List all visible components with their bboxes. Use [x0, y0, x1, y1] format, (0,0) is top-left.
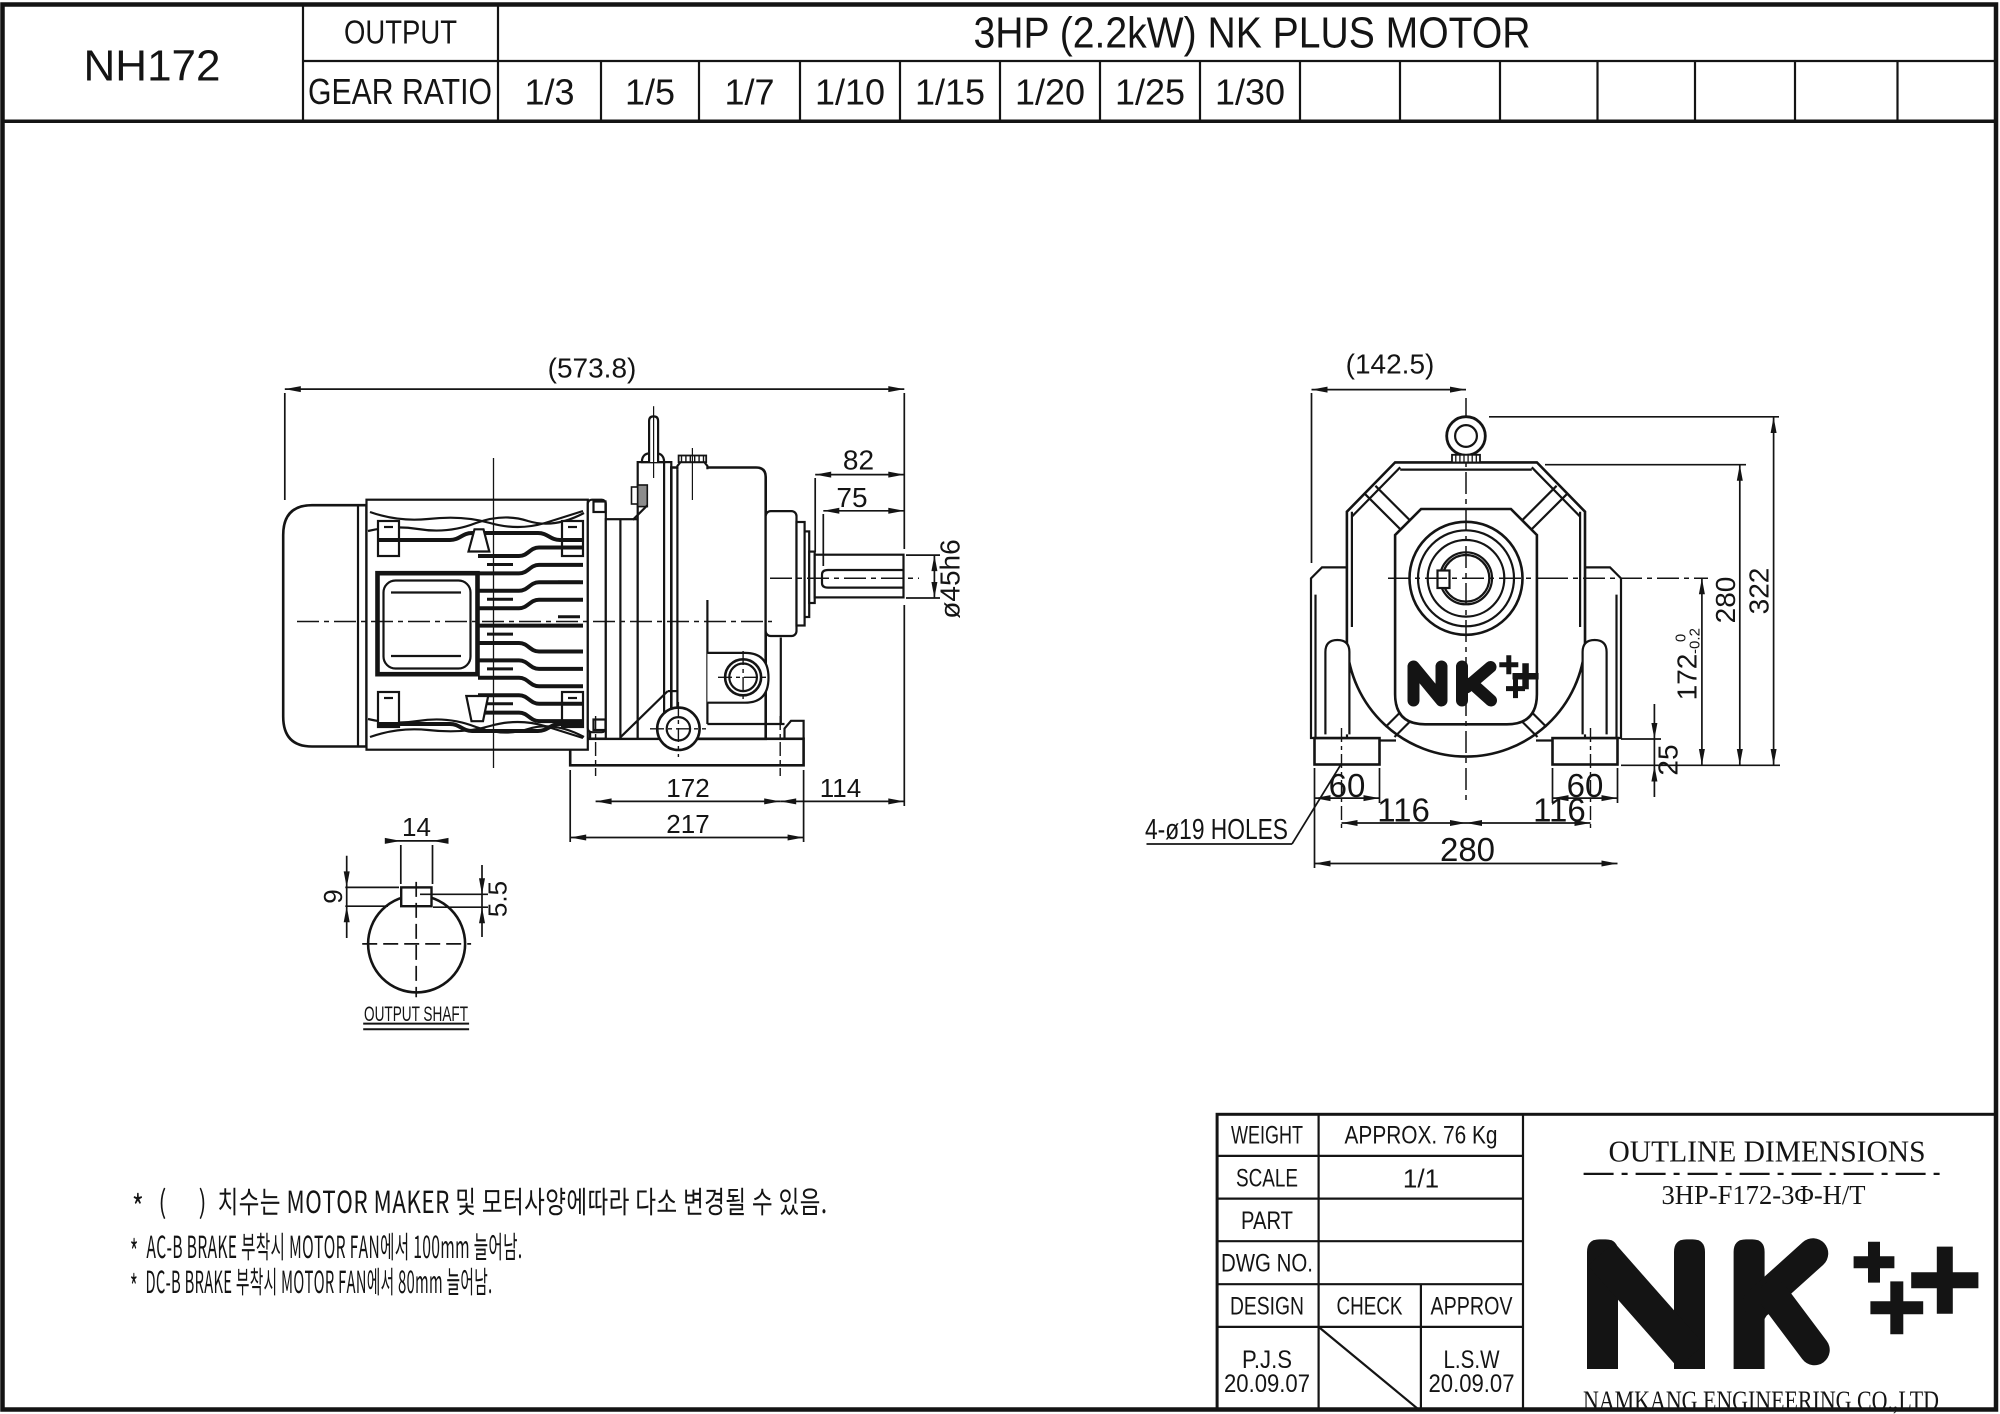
- svg-text:3HP (2.2kW) NK PLUS MOTOR: 3HP (2.2kW) NK PLUS MOTOR: [974, 9, 1531, 58]
- svg-text:9: 9: [318, 889, 348, 903]
- svg-text:1/10: 1/10: [815, 72, 885, 113]
- svg-text:1/3: 1/3: [524, 72, 574, 113]
- svg-text:APPROV: APPROV: [1431, 1293, 1513, 1321]
- svg-text:20.09.07: 20.09.07: [1224, 1370, 1310, 1398]
- svg-text:114: 114: [820, 773, 861, 803]
- svg-text:OUTPUT SHAFT: OUTPUT SHAFT: [364, 1003, 468, 1026]
- svg-text:SCALE: SCALE: [1236, 1165, 1298, 1193]
- svg-text:NH172: NH172: [84, 42, 221, 91]
- svg-text:3HP-F172-3Φ-H/T: 3HP-F172-3Φ-H/T: [1662, 1180, 1866, 1210]
- svg-text:NAMKANG ENGINEERING CO.,LTD: NAMKANG ENGINEERING CO.,LTD: [1583, 1385, 1939, 1414]
- svg-text:1/7: 1/7: [724, 72, 774, 113]
- svg-text:280: 280: [1710, 577, 1741, 624]
- svg-text:172: 172: [666, 773, 709, 803]
- svg-text:4-ø19 HOLES: 4-ø19 HOLES: [1145, 814, 1288, 846]
- svg-text:1/15: 1/15: [915, 72, 985, 113]
- svg-text:1/20: 1/20: [1015, 72, 1085, 113]
- svg-text:25: 25: [1653, 744, 1684, 775]
- svg-text:217: 217: [666, 809, 709, 839]
- svg-text:OUTPUT: OUTPUT: [344, 14, 457, 51]
- svg-text:172: 172: [1672, 654, 1703, 701]
- svg-text:DWG NO.: DWG NO.: [1221, 1250, 1313, 1278]
- svg-text:82: 82: [843, 445, 874, 476]
- svg-text:(142.5): (142.5): [1346, 349, 1435, 380]
- svg-text:WEIGHT: WEIGHT: [1231, 1122, 1303, 1150]
- svg-text:1/25: 1/25: [1115, 72, 1185, 113]
- svg-text:DESIGN: DESIGN: [1230, 1293, 1304, 1321]
- svg-text:5.5: 5.5: [483, 881, 513, 917]
- svg-text:20.09.07: 20.09.07: [1429, 1370, 1515, 1398]
- svg-text:CHECK: CHECK: [1337, 1293, 1403, 1321]
- svg-text:1/5: 1/5: [625, 72, 675, 113]
- svg-text:ø45h6: ø45h6: [935, 539, 966, 618]
- svg-text:GEAR RATIO: GEAR RATIO: [308, 71, 492, 112]
- svg-text:75: 75: [836, 482, 867, 513]
- svg-text:1/30: 1/30: [1215, 72, 1285, 113]
- svg-text:322: 322: [1744, 568, 1775, 615]
- svg-text:(573.8): (573.8): [548, 353, 637, 384]
- svg-text:14: 14: [402, 812, 431, 842]
- svg-text:PART: PART: [1241, 1207, 1293, 1235]
- svg-text:APPROX. 76 Kg: APPROX. 76 Kg: [1345, 1122, 1498, 1150]
- svg-text:1/1: 1/1: [1403, 1164, 1439, 1194]
- svg-text:-0.2: -0.2: [1687, 628, 1704, 654]
- svg-text:OUTLINE DIMENSIONS: OUTLINE DIMENSIONS: [1609, 1134, 1926, 1169]
- svg-text:280: 280: [1440, 831, 1495, 868]
